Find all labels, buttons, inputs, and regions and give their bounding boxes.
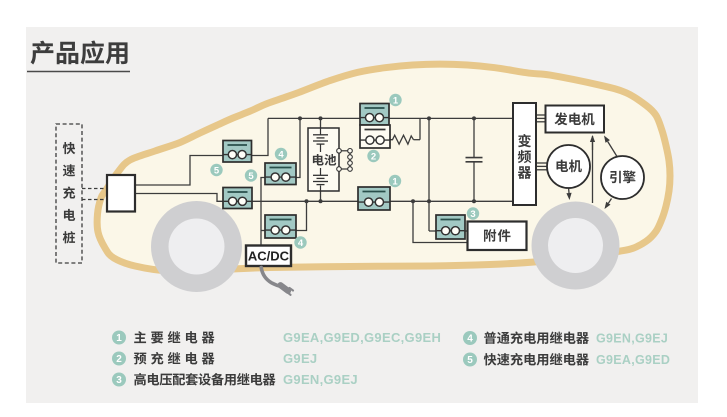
svg-text:1: 1 [116,333,122,344]
svg-text:G9EA,G9ED,G9EC,G9EH: G9EA,G9ED,G9EC,G9EH [283,330,441,345]
svg-text:1: 1 [392,176,398,187]
svg-text:G9EJ: G9EJ [283,351,317,366]
svg-text:G9EA,G9ED: G9EA,G9ED [596,353,670,367]
svg-text:3: 3 [116,375,122,386]
svg-text:3: 3 [470,209,475,220]
svg-text:5: 5 [248,171,254,182]
svg-text:2: 2 [371,151,376,162]
svg-text:AC/DC: AC/DC [248,249,290,264]
svg-text:4: 4 [467,334,473,345]
svg-text:2: 2 [116,354,122,365]
svg-text:G9EN,G9EJ: G9EN,G9EJ [283,372,358,387]
svg-text:4: 4 [278,149,284,160]
svg-text:5: 5 [467,355,473,366]
svg-text:1: 1 [393,95,399,106]
svg-text:5: 5 [214,165,220,176]
svg-text:G9EN,G9EJ: G9EN,G9EJ [596,332,668,346]
svg-text:4: 4 [298,238,304,249]
